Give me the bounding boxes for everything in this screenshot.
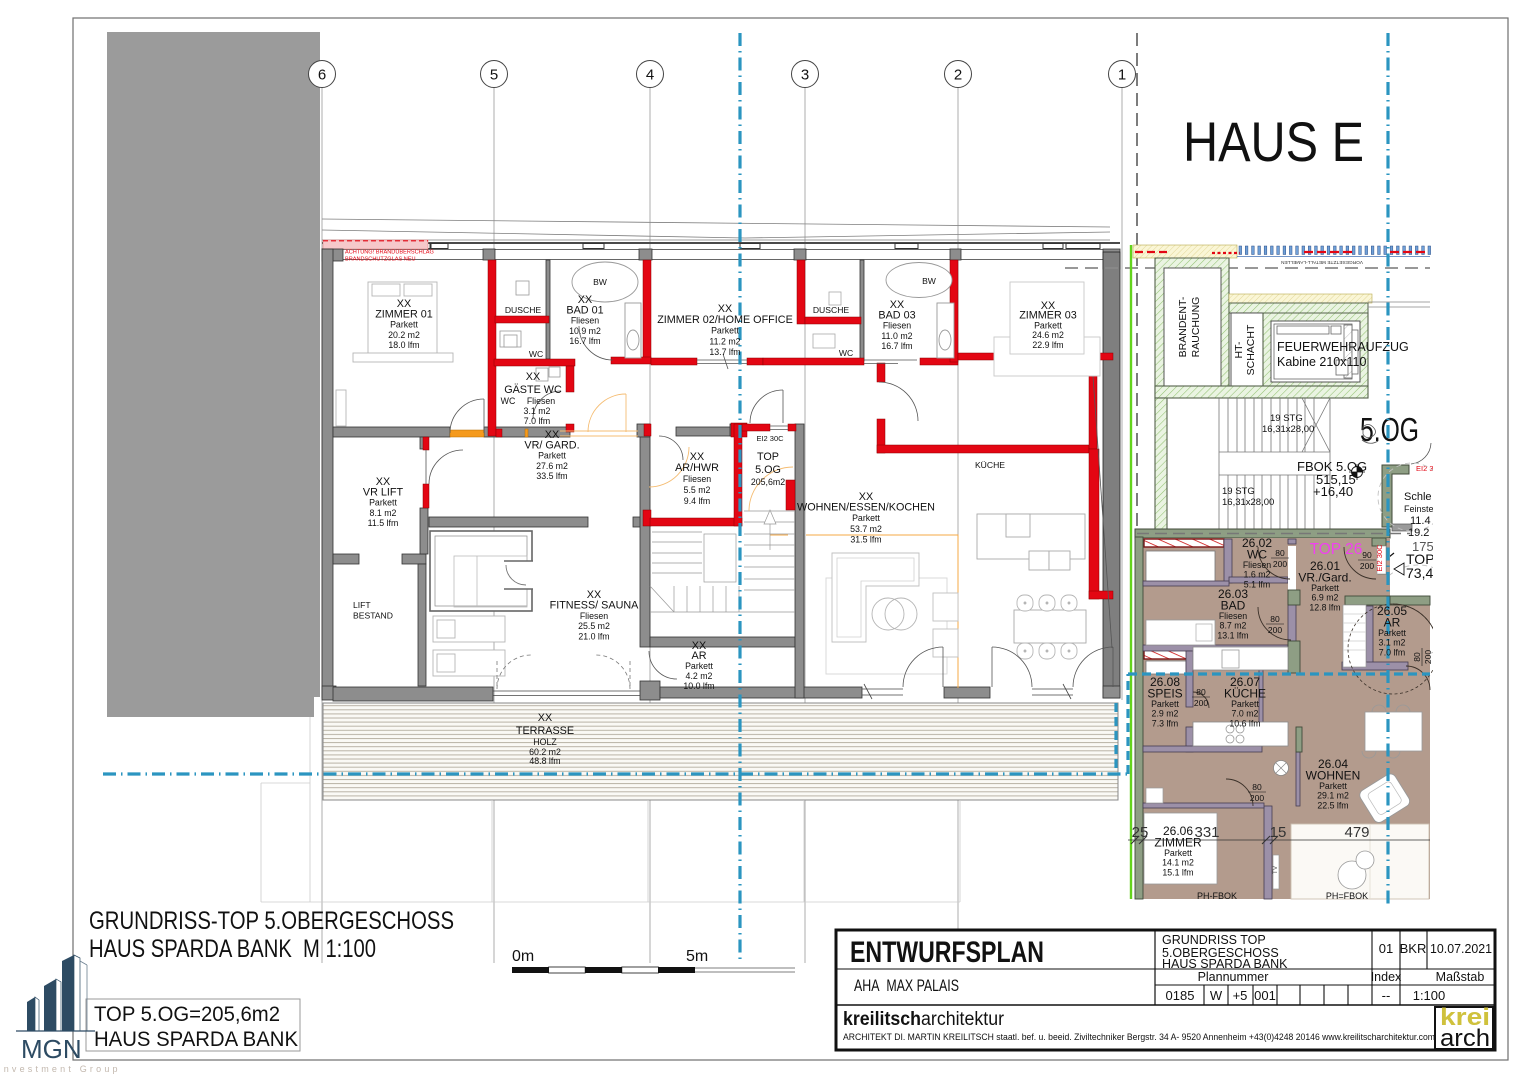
svg-text:5.OG: 5.OG xyxy=(755,464,781,476)
svg-text:GRUNDRISS-TOP 5.OBERGESCHOSS: GRUNDRISS-TOP 5.OBERGESCHOSS xyxy=(89,907,454,935)
svg-text:001: 001 xyxy=(1254,988,1276,1003)
svg-text:19 STG: 19 STG xyxy=(1222,486,1255,497)
svg-text:Kabine 210x110: Kabine 210x110 xyxy=(1277,355,1366,369)
svg-text:HAUS SPARDA BANK: HAUS SPARDA BANK xyxy=(1162,957,1288,971)
svg-text:EI2 30C: EI2 30C xyxy=(756,434,784,443)
svg-text:SCHACHT: SCHACHT xyxy=(1245,324,1257,375)
svg-text:ACHTUNG! BRANDÜBERSCHLAG: ACHTUNG! BRANDÜBERSCHLAG xyxy=(345,249,434,256)
svg-text:26.05ARParkett3.1 m27.0 lfm: 26.05ARParkett3.1 m27.0 lfm xyxy=(1377,604,1407,657)
svg-text:TOP 5.OG=205,6m2: TOP 5.OG=205,6m2 xyxy=(94,1003,280,1026)
svg-text:RAUCHUNG: RAUCHUNG xyxy=(1190,297,1202,358)
svg-text:5m: 5m xyxy=(686,948,708,965)
svg-text:26.08SPEISParkett2.9 m27.3 lfm: 26.08SPEISParkett2.9 m27.3 lfm xyxy=(1147,675,1182,728)
svg-text:479: 479 xyxy=(1344,824,1369,841)
svg-text:BRANDSCHUTZGLAS NEU: BRANDSCHUTZGLAS NEU xyxy=(345,257,416,263)
svg-text:200: 200 xyxy=(1250,793,1264,803)
svg-text:7.0 lfm: 7.0 lfm xyxy=(524,416,550,426)
svg-text:6: 6 xyxy=(318,67,326,84)
svg-text:80: 80 xyxy=(1196,687,1206,697)
svg-text:200: 200 xyxy=(1423,650,1433,664)
svg-text:26.03BADFliesen8.7 m213.1 lfm: 26.03BADFliesen8.7 m213.1 lfm xyxy=(1217,587,1248,640)
svg-text:BW: BW xyxy=(922,276,937,286)
svg-text:HAUS SPARDA BANK M 1:100: HAUS SPARDA BANK M 1:100 xyxy=(89,935,376,963)
svg-text:01: 01 xyxy=(1379,941,1393,956)
svg-text:PH=FBOK: PH=FBOK xyxy=(1326,891,1368,901)
svg-text:19.2 l: 19.2 l xyxy=(1408,527,1435,539)
svg-text:VORGESETZTE METALL-LAMELLEN: VORGESETZTE METALL-LAMELLEN xyxy=(1280,259,1363,265)
svg-text:19 STG: 19 STG xyxy=(1270,413,1303,424)
svg-text:--: -- xyxy=(1382,988,1391,1003)
svg-text:LIFT: LIFT xyxy=(353,600,371,610)
svg-text:48.8 lfm: 48.8 lfm xyxy=(529,756,560,766)
svg-text:2: 2 xyxy=(954,67,962,84)
svg-text:Index: Index xyxy=(1371,970,1402,984)
svg-text:16,31x28,00: 16,31x28,00 xyxy=(1222,497,1274,508)
svg-text:WC: WC xyxy=(839,348,853,358)
svg-text:1: 1 xyxy=(1118,67,1126,84)
svg-text:GRUNDRISS TOP: GRUNDRISS TOP xyxy=(1162,933,1266,947)
svg-text:W: W xyxy=(1210,988,1223,1003)
svg-text:4: 4 xyxy=(646,67,654,84)
svg-text:ENTWURFSPLAN: ENTWURFSPLAN xyxy=(850,936,1044,969)
svg-text:HOLZ: HOLZ xyxy=(533,737,557,747)
svg-text:kreilitscharchitektur: kreilitscharchitektur xyxy=(843,1009,1005,1030)
svg-text:ARCHITEKT DI. MARTIN KREILITSC: ARCHITEKT DI. MARTIN KREILITSCH staatl. … xyxy=(843,1032,1435,1043)
svg-text:200: 200 xyxy=(1273,559,1287,569)
svg-text:TV: TV xyxy=(1272,865,1279,874)
svg-text:TERRASSE: TERRASSE xyxy=(516,725,574,737)
svg-text:5: 5 xyxy=(490,67,498,84)
svg-text:KÜCHE: KÜCHE xyxy=(975,460,1005,470)
svg-text:15: 15 xyxy=(1270,824,1287,841)
svg-text:331: 331 xyxy=(1194,824,1219,841)
svg-text:TOP 26: TOP 26 xyxy=(1310,541,1363,558)
svg-text:DUSCHE: DUSCHE xyxy=(505,305,542,315)
svg-text:AHA MAX PALAIS: AHA MAX PALAIS xyxy=(854,976,959,995)
svg-text:80: 80 xyxy=(1275,548,1285,558)
svg-text:BRANDENT-: BRANDENT- xyxy=(1177,296,1189,357)
svg-text:Plannummer: Plannummer xyxy=(1198,970,1269,984)
svg-text:0m: 0m xyxy=(512,948,534,965)
svg-text:200: 200 xyxy=(1268,625,1282,635)
svg-text:TOP: TOP xyxy=(757,451,779,463)
svg-text:PH-FBOK: PH-FBOK xyxy=(1197,891,1237,901)
svg-text:1:100: 1:100 xyxy=(1413,988,1446,1003)
svg-text:200: 200 xyxy=(1194,698,1208,708)
svg-text:Fliesen: Fliesen xyxy=(527,396,555,406)
svg-text:16,31x28,00: 16,31x28,00 xyxy=(1262,424,1314,435)
svg-text:200: 200 xyxy=(1360,561,1374,571)
svg-text:Feinstei: Feinstei xyxy=(1404,504,1436,514)
svg-text:+16,40: +16,40 xyxy=(1313,484,1353,499)
svg-text:11.4: 11.4 xyxy=(1410,515,1431,527)
svg-text:EI2 30C: EI2 30C xyxy=(1375,544,1384,572)
svg-text:0185: 0185 xyxy=(1166,988,1195,1003)
svg-text:XX: XX xyxy=(538,712,552,724)
svg-text:MGN: MGN xyxy=(21,1034,82,1064)
svg-text:3.1 m2: 3.1 m2 xyxy=(524,406,551,416)
svg-text:BESTAND: BESTAND xyxy=(353,611,393,621)
svg-text:WC: WC xyxy=(529,349,543,359)
svg-text:205,6m2: 205,6m2 xyxy=(751,477,785,487)
svg-text:HAUS E: HAUS E xyxy=(1183,110,1364,173)
svg-text:80: 80 xyxy=(1252,782,1262,792)
svg-text:3: 3 xyxy=(801,67,809,84)
svg-text:HT-: HT- xyxy=(1233,341,1245,358)
svg-text:80: 80 xyxy=(1270,614,1280,624)
svg-text:Schle: Schle xyxy=(1404,491,1432,503)
svg-text:HAUS SPARDA BANK: HAUS SPARDA BANK xyxy=(94,1028,298,1051)
svg-text:BKR: BKR xyxy=(1400,941,1427,956)
svg-text:10.07.2021: 10.07.2021 xyxy=(1430,942,1492,956)
svg-text:DUSCHE: DUSCHE xyxy=(813,305,850,315)
svg-text:arch: arch xyxy=(1440,1025,1490,1052)
svg-text:Investment Group: Investment Group xyxy=(0,1064,121,1074)
svg-text:Maßstab: Maßstab xyxy=(1436,970,1485,984)
svg-text:26.02WCFliesen1.6 m25.1 lfm: 26.02WCFliesen1.6 m25.1 lfm xyxy=(1242,536,1272,589)
svg-text:90: 90 xyxy=(1362,550,1372,560)
svg-text:BW: BW xyxy=(593,277,608,287)
svg-text:WC: WC xyxy=(501,396,516,406)
svg-text:80: 80 xyxy=(1412,652,1422,662)
svg-text:25: 25 xyxy=(1132,824,1149,841)
svg-text:+5: +5 xyxy=(1233,988,1248,1003)
